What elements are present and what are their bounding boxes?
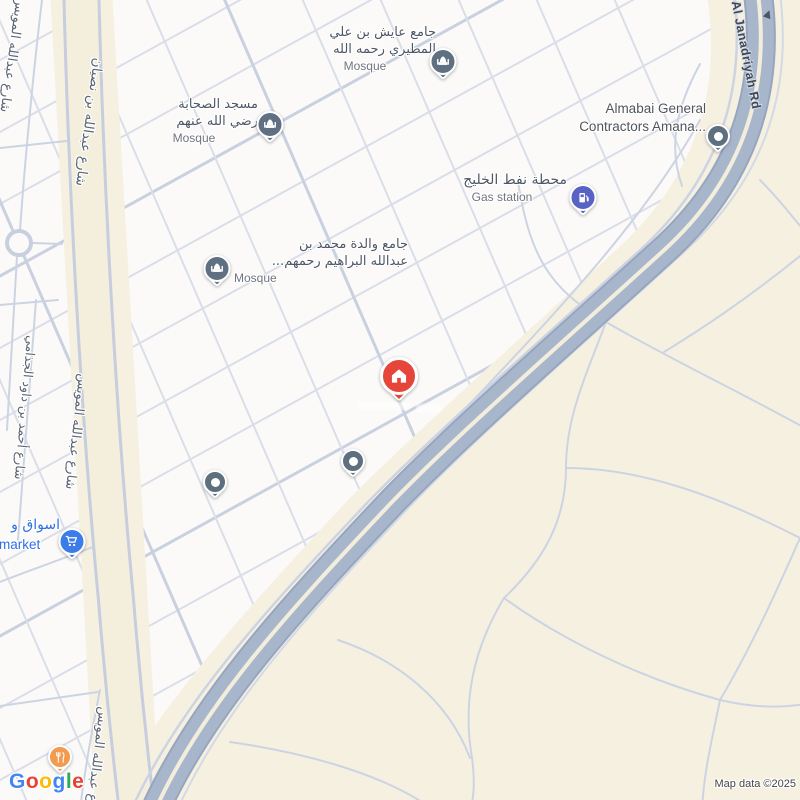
dot-icon — [349, 457, 358, 466]
mosque-pin-aish[interactable] — [430, 48, 457, 78]
mosque-icon — [263, 117, 278, 132]
home-icon — [389, 366, 409, 386]
generic-poi-pin[interactable] — [341, 449, 365, 476]
fork-knife-icon — [54, 751, 67, 764]
shopping-cart-icon — [65, 534, 80, 549]
map-viewport[interactable]: Al Janadriyah Rd شارع عبدالله بن نصيان ش… — [0, 0, 800, 800]
gas-station-pin[interactable] — [570, 184, 597, 214]
logo-letter: o — [26, 770, 39, 793]
poi-name-line: المطيري رحمه الله — [294, 41, 436, 58]
poi-category: Mosque — [294, 58, 436, 75]
mosque-pin-sahaba[interactable] — [257, 111, 284, 141]
fuel-pump-icon — [576, 191, 590, 205]
map-attribution: Map data ©2025 — [715, 778, 797, 790]
logo-letter: e — [72, 770, 84, 793]
poi-name-line: جامع عايش بن علي — [294, 24, 436, 41]
poi-label-mosque-sahaba[interactable]: مسجد الصحابة رضي الله عنهم Mosque — [130, 96, 258, 147]
mosque-icon — [436, 54, 451, 69]
google-logo[interactable]: Google — [9, 770, 84, 794]
poi-label-mosque-walidat[interactable]: جامع والدة محمد بن عبدالله البراهيم رحمه… — [234, 236, 408, 287]
poi-label-gas-station[interactable]: محطة نفط الخليج Gas station — [437, 172, 567, 206]
logo-letter: G — [9, 770, 26, 793]
logo-letter: g — [53, 770, 66, 793]
poi-name-line: محطة نفط الخليج — [437, 172, 567, 189]
restaurant-pin[interactable] — [48, 745, 72, 772]
generic-poi-pin[interactable] — [203, 470, 227, 497]
mosque-pin-walidat[interactable] — [204, 255, 231, 285]
poi-name-line: Contractors Amana... — [550, 118, 706, 136]
poi-category: Mosque — [234, 270, 408, 287]
poi-label-almabai[interactable]: Almabai General Contractors Amana... — [550, 100, 706, 136]
poi-label-supermarket-ar[interactable]: اسواق و — [0, 517, 60, 534]
poi-label-mosque-aish[interactable]: جامع عايش بن علي المطيري رحمه الله Mosqu… — [294, 24, 436, 75]
dot-icon — [211, 478, 220, 487]
roundabout — [7, 231, 31, 255]
poi-name-line: عبدالله البراهيم رحمهم... — [234, 253, 408, 270]
poi-name-line: اسواق و — [0, 517, 60, 534]
faded-watermark — [358, 401, 410, 410]
logo-letter: o — [39, 770, 52, 793]
poi-name-line: Almabai General — [550, 100, 706, 118]
mosque-icon — [210, 261, 225, 276]
supermarket-pin[interactable] — [59, 528, 86, 558]
poi-name-line: مسجد الصحابة — [130, 96, 258, 113]
poi-name-line: جامع والدة محمد بن — [234, 236, 408, 253]
poi-name-line: رضي الله عنهم — [130, 113, 258, 130]
faded-watermark — [416, 404, 442, 413]
dot-icon — [714, 132, 723, 141]
poi-category: Mosque — [130, 130, 258, 147]
poi-category: Gas station — [437, 189, 567, 206]
property-marker[interactable] — [380, 357, 418, 399]
generic-poi-pin-almabai[interactable] — [706, 124, 730, 151]
